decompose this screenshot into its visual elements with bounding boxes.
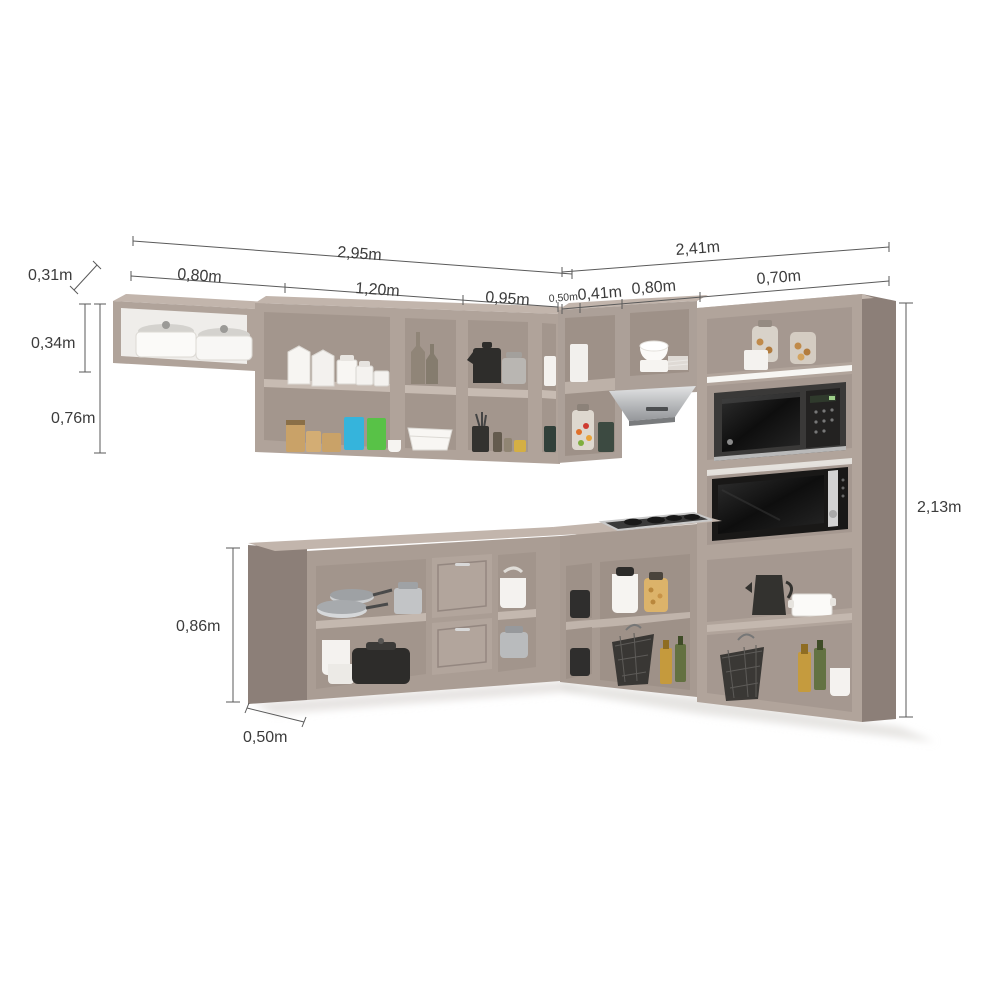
dim-label-base-depth: 0,50m <box>243 729 287 746</box>
dark-container <box>570 648 590 676</box>
dim-label-upper-left-total: 2,95m <box>337 244 383 264</box>
dim-line-upper-depth <box>70 261 101 294</box>
dim-label-small-cabinet-height: 0,34m <box>31 335 75 352</box>
product-dimension-diagram: 2,95m 0,80m 1,20m 0,95m 2,41m 0,50m 0,41… <box>0 0 1000 1000</box>
dim-label-seg-080-right: 0,80m <box>631 278 677 298</box>
kitchen-scene: 2,95m 0,80m 1,20m 0,95m 2,41m 0,50m 0,41… <box>0 0 1000 1000</box>
upper-cabinet-run-left <box>255 296 571 464</box>
drawer-handle <box>455 563 470 566</box>
dim-line-tall-height <box>899 303 913 717</box>
microwave-2 <box>712 467 848 541</box>
dark-box <box>544 426 556 452</box>
dim-line-upper-height <box>94 304 106 453</box>
upper-cabinet-run-right <box>558 295 708 463</box>
dim-label-upper-height: 0,76m <box>51 410 95 427</box>
dim-label-seg-095: 0,95m <box>485 289 531 309</box>
dim-line-upper-right-total <box>562 242 889 277</box>
green-box <box>598 422 614 452</box>
dim-label-seg-070: 0,70m <box>756 268 802 288</box>
candy-jar <box>572 404 594 450</box>
dark-container <box>570 590 590 618</box>
dim-line-base-height <box>226 548 240 702</box>
microwave-1 <box>714 382 846 461</box>
dim-label-upper-depth: 0,31m <box>28 267 72 284</box>
dim-line-small-cabinet-height <box>79 304 91 372</box>
upper-cabinet-small <box>113 294 268 371</box>
dim-label-base-height: 0,86m <box>176 618 220 635</box>
electrolux-logo <box>727 439 733 445</box>
drawer-handle <box>455 628 470 631</box>
base-cabinet-run-left <box>248 527 580 704</box>
range-hood <box>609 386 696 426</box>
dim-label-seg-041: 0,41m <box>577 284 623 304</box>
dim-label-seg-080-left: 0,80m <box>177 266 223 286</box>
base-cabinet-run-right <box>553 513 722 697</box>
dim-label-seg-120: 1,20m <box>355 280 401 300</box>
dim-label-upper-right-total: 2,41m <box>675 239 721 259</box>
tall-cabinet <box>697 294 896 722</box>
dim-label-tall-height: 2,13m <box>917 499 961 516</box>
dim-label-seg-050: 0,50m <box>548 291 578 305</box>
white-container <box>570 344 588 382</box>
small-canister <box>544 356 556 386</box>
white-bowl-stack <box>408 428 452 450</box>
